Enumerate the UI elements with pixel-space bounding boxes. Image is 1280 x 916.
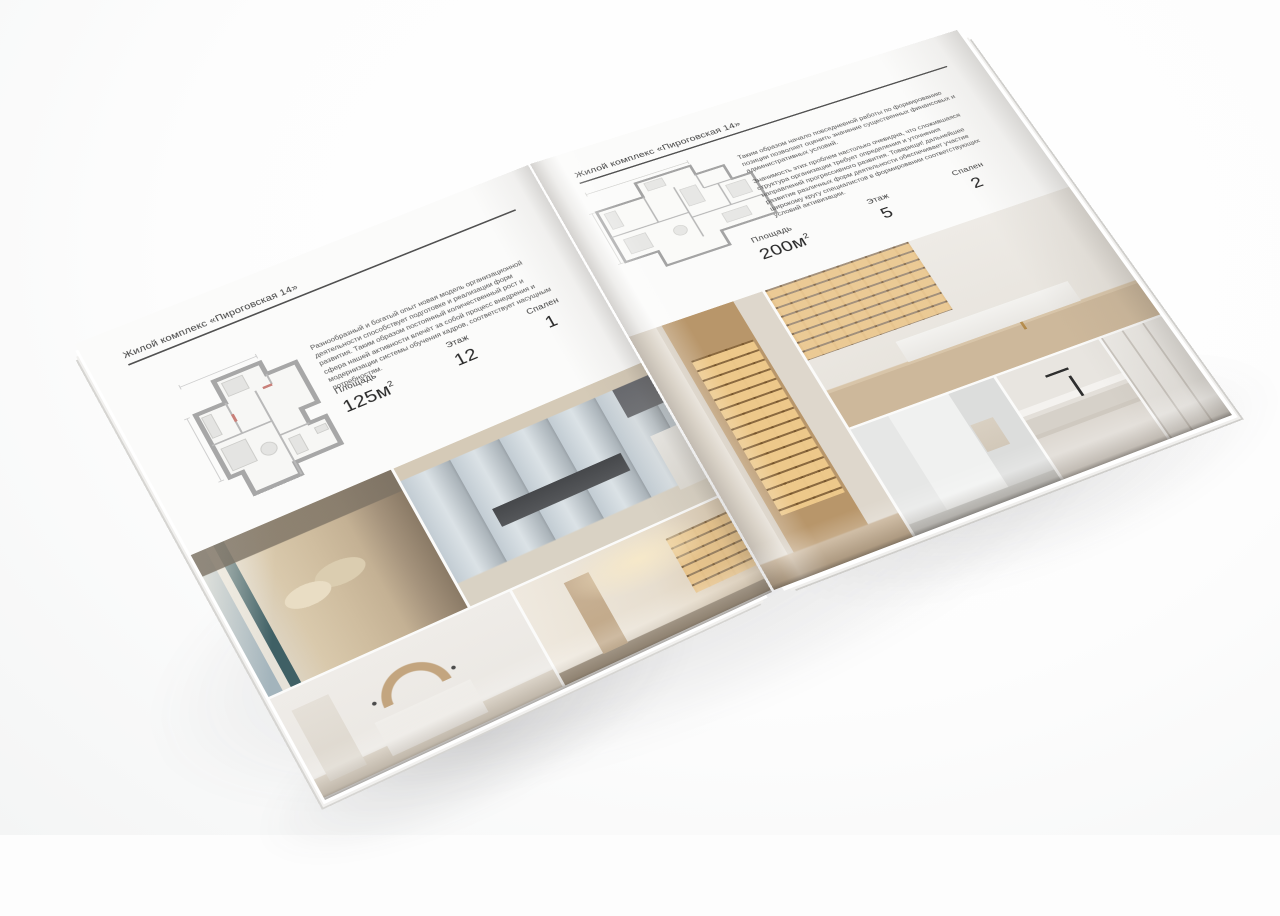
brochure-mockup-scene: Жилой комплекс «Пироговская 14» Раз: [0, 0, 1280, 835]
stat-floor: Этаж 5: [865, 192, 903, 224]
stat-floor-value: 5: [872, 202, 903, 224]
stat-floor: Этаж 12: [444, 333, 482, 370]
stat-floor-value: 12: [451, 345, 482, 371]
stat-bedrooms: Спален 2: [950, 161, 997, 196]
